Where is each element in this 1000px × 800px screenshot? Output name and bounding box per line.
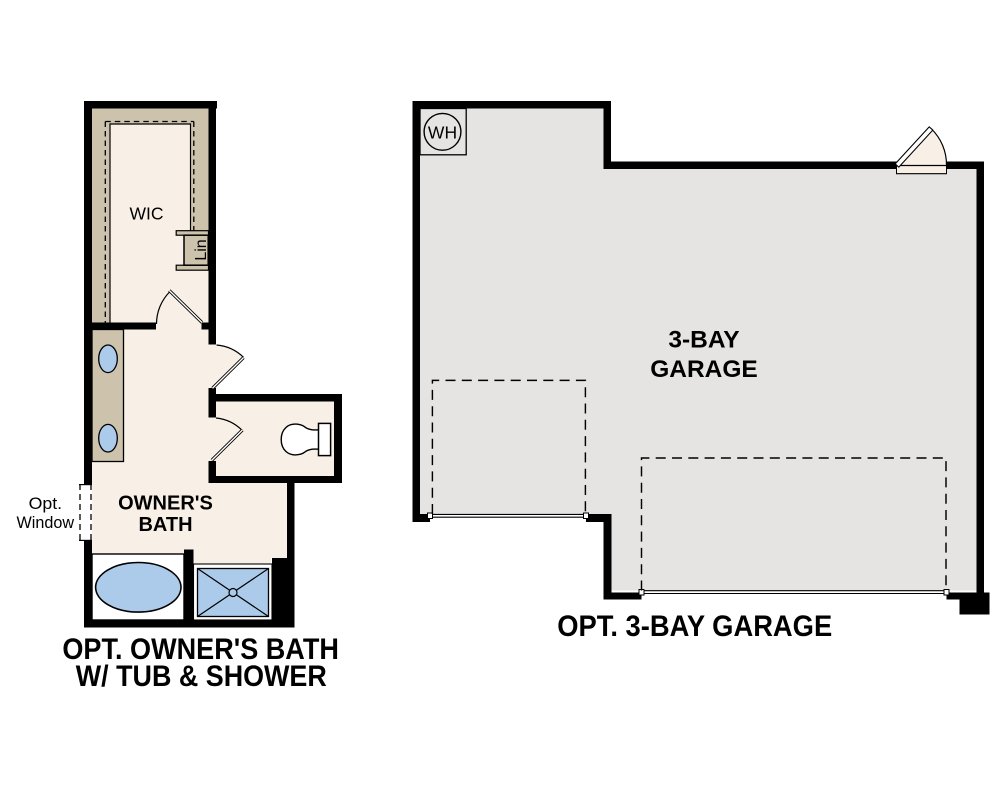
svg-text:GARAGE: GARAGE <box>650 356 758 383</box>
svg-text:Opt.: Opt. <box>29 494 63 513</box>
svg-text:OPT. 3-BAY GARAGE: OPT. 3-BAY GARAGE <box>557 610 832 643</box>
svg-text:BATH: BATH <box>138 514 192 536</box>
svg-text:Lin: Lin <box>193 239 210 260</box>
svg-text:OWNER'S: OWNER'S <box>118 493 213 515</box>
svg-text:3-BAY: 3-BAY <box>668 327 739 354</box>
svg-text:WIC: WIC <box>129 204 163 224</box>
svg-text:Window: Window <box>17 513 75 532</box>
svg-text:W/ TUB & SHOWER: W/ TUB & SHOWER <box>76 660 327 693</box>
svg-text:WH: WH <box>428 123 457 143</box>
